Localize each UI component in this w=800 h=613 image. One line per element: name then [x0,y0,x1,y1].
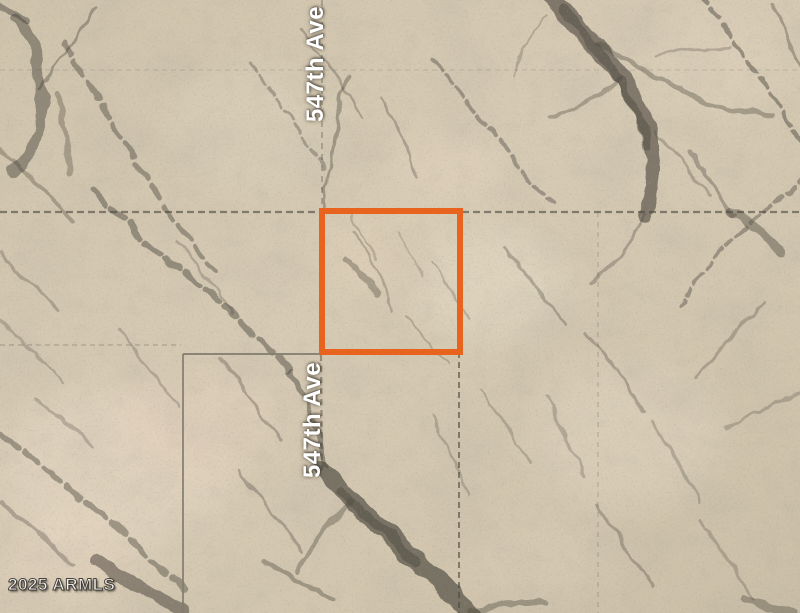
watermark: 2025 ARMLS [8,575,115,595]
satellite-map-image: 547th Ave 547th Ave 2025 ARMLS [0,0,800,613]
terrain-svg [0,0,800,613]
terrain-grain-light [0,0,800,613]
road-label-top: 547th Ave [302,6,330,122]
road-label-middle: 547th Ave [299,362,327,478]
